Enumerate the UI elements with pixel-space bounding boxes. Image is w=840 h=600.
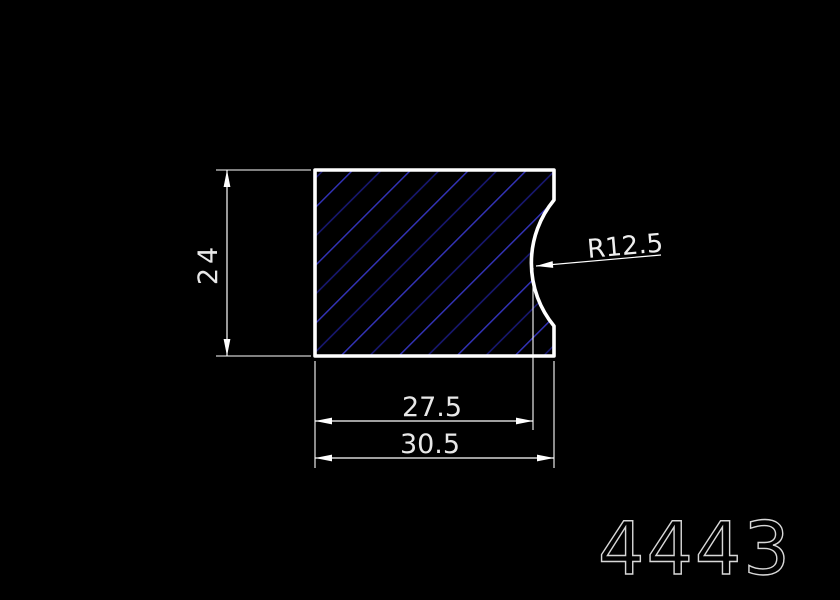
dimension-height-label: 24 [193, 243, 224, 285]
section-profile [315, 170, 554, 356]
cad-drawing-viewport[interactable]: 24 27.5 30.5 R12.5 4443 [0, 0, 840, 600]
cad-drawing: 24 27.5 30.5 R12.5 4443 [0, 0, 840, 600]
arrowhead-up [224, 170, 231, 187]
dimension-height: 24 [193, 170, 311, 356]
part-number: 4443 [598, 507, 792, 592]
arrowhead-left [315, 418, 332, 425]
dimension-radius-label: R12.5 [586, 228, 664, 265]
arrowhead-down [224, 339, 231, 356]
section-hatch-fill [315, 170, 554, 356]
arrowhead-right [516, 418, 533, 425]
dimension-radius-leader: R12.5 [536, 228, 665, 269]
arrowhead-right [537, 455, 554, 462]
dimension-width-outer-label: 30.5 [400, 429, 460, 460]
arrowhead-left [315, 455, 332, 462]
dimension-width-inner-label: 27.5 [402, 392, 462, 423]
